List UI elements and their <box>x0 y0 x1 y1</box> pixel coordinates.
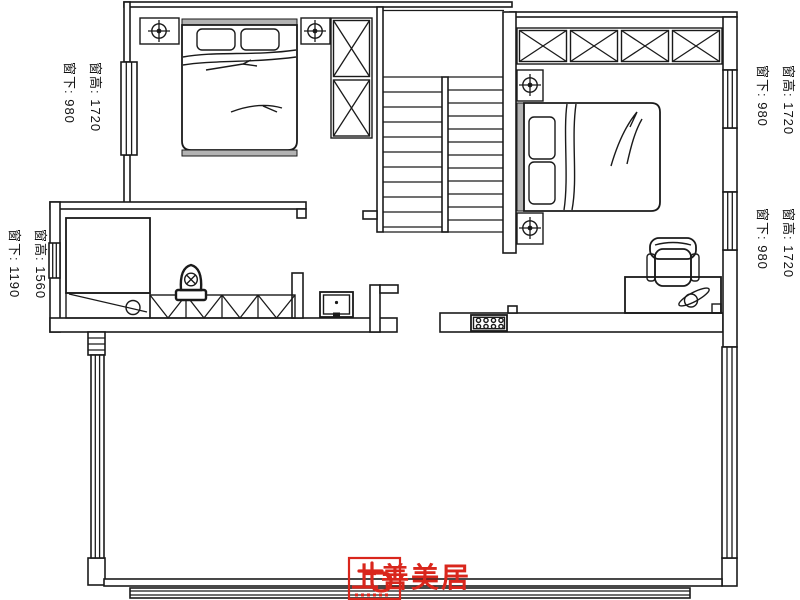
nightstand <box>301 18 330 44</box>
logo-mark <box>346 556 404 600</box>
ceiling-lamp-icon <box>519 217 541 239</box>
ceiling-lamp-icon <box>304 20 326 42</box>
floor-plan-svg <box>0 0 800 600</box>
desk <box>625 277 721 313</box>
window-label-right-top: 窗高: 1720 窗下: 980 <box>749 65 800 177</box>
window-label-left-top: 窗高: 1720 窗下: 980 <box>56 62 108 174</box>
bathroom <box>66 218 353 318</box>
label-line: 窗高: 1720 <box>775 65 800 177</box>
double-bed <box>517 103 660 211</box>
nightstand <box>517 213 543 244</box>
nightstand <box>517 70 543 101</box>
label-line: 窗高: 1720 <box>775 208 800 320</box>
window-label-left-middle: 窗高: 1560 窗下: 1190 <box>1 229 53 341</box>
brand-logo: 上善美居 <box>346 556 471 600</box>
floor-plan-page: 窗高: 1720 窗下: 980 窗高: 1560 窗下: 1190 窗高: 1… <box>0 0 800 600</box>
window-bigroom-right <box>722 347 737 558</box>
staircase <box>383 77 503 232</box>
outer-walls <box>50 2 737 586</box>
stair-divider <box>442 77 448 232</box>
cabinet-run <box>150 295 295 318</box>
bedroom-left <box>140 18 372 156</box>
pillow <box>529 117 555 159</box>
window-bigroom-left <box>91 355 104 558</box>
vanity-counter <box>66 293 150 318</box>
office-chair <box>647 238 699 286</box>
label-line: 窗下: 980 <box>56 62 82 174</box>
pillow <box>529 162 555 204</box>
label-line: 窗下: 1190 <box>1 229 27 341</box>
vent-shaft <box>88 332 105 355</box>
toilet <box>176 265 206 300</box>
label-line: 窗下: 980 <box>749 65 775 177</box>
wardrobe-row <box>517 28 722 64</box>
pillow <box>197 29 235 50</box>
washbasin <box>320 292 353 318</box>
bedroom-right <box>517 28 722 313</box>
desk-lamp-icon <box>677 285 711 309</box>
pillow <box>241 29 279 50</box>
window-bedroom-right-upper <box>723 70 737 128</box>
double-bed <box>182 19 297 156</box>
label-line: 窗下: 980 <box>749 208 775 320</box>
label-line: 窗高: 1560 <box>27 229 53 341</box>
nightstand <box>140 18 179 44</box>
window-label-right-middle: 窗高: 1720 窗下: 980 <box>749 208 800 320</box>
window-bedroom-left <box>121 62 137 155</box>
wardrobe <box>331 18 372 138</box>
ceiling-lamp-icon <box>519 74 541 96</box>
window-bedroom-right-lower <box>723 192 737 250</box>
ceiling-lamp-icon <box>148 20 170 42</box>
label-line: 窗高: 1720 <box>82 62 108 174</box>
shower-enclosure <box>66 218 150 293</box>
